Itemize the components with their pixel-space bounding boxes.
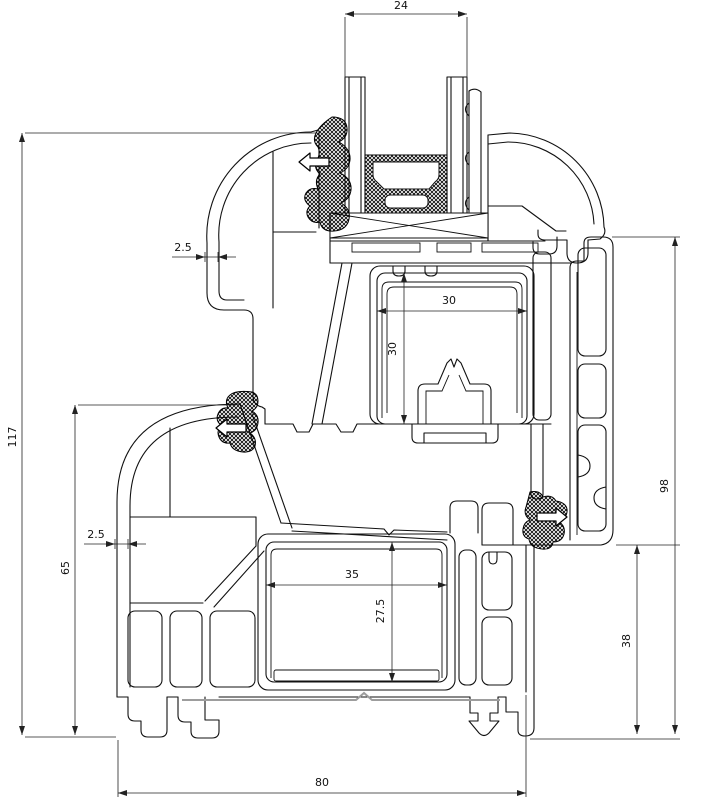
frame-foot — [469, 697, 499, 736]
dimension-frame-wall-thickness: 2.5 — [84, 528, 146, 549]
dimension-sash-chamber-height: 30 — [386, 273, 407, 424]
dimension-label-frame-chamber-width: 35 — [345, 568, 359, 581]
dimension-outer-frame-height: 98 — [530, 237, 680, 739]
sash-drip-hook — [538, 230, 588, 263]
hardware-groove — [424, 433, 486, 443]
frame-profile — [117, 237, 613, 738]
dimension-label-frame-wall-thickness: 2.5 — [87, 528, 105, 541]
dimension-label-outer-frame-height: 98 — [658, 479, 671, 493]
dimension-frame-depth: 80 — [118, 695, 526, 797]
glazing-bead — [469, 89, 481, 92]
frame-foot — [506, 692, 534, 736]
dimension-label-frame-height: 65 — [59, 561, 72, 575]
dimension-glazing-width: 24 — [345, 0, 467, 78]
dimension-label-glazing-width: 24 — [394, 0, 408, 12]
glazing-unit — [330, 77, 488, 238]
frame-foot — [178, 697, 219, 738]
dimension-frame-height: 65 — [59, 405, 236, 735]
dimension-label-sash-wall-thickness: 2.5 — [174, 241, 192, 254]
dimension-label-lower-setback-height: 38 — [620, 634, 633, 648]
dimension-sash-wall-thickness: 2.5 — [172, 241, 236, 262]
dimension-label-sash-chamber-width: 30 — [442, 294, 456, 307]
dimension-overall-height: 117 — [6, 133, 316, 737]
dimension-lower-setback-height: 38 — [616, 545, 680, 734]
sash-profile — [207, 89, 605, 499]
dimension-sash-chamber-width: 30 — [377, 294, 527, 314]
window-profile-section-drawing: 242.52.51176530303527.5389880 — [0, 0, 706, 804]
dimension-label-sash-chamber-height: 30 — [386, 342, 399, 356]
glazing-gasket — [305, 117, 351, 231]
dimension-frame-chamber-height: 27.5 — [374, 542, 395, 682]
technical-drawing-page: 242.52.51176530303527.5389880 — [0, 0, 706, 804]
frame-steel-bar — [274, 670, 439, 681]
dimension-frame-chamber-width: 35 — [266, 568, 447, 588]
dimension-label-overall-height: 117 — [6, 427, 19, 448]
dimension-label-frame-depth: 80 — [315, 776, 329, 789]
dimension-label-frame-chamber-height: 27.5 — [374, 599, 387, 624]
frame-foot — [128, 697, 167, 737]
glass-pane-inner — [447, 77, 467, 213]
screw-boss — [418, 359, 491, 424]
